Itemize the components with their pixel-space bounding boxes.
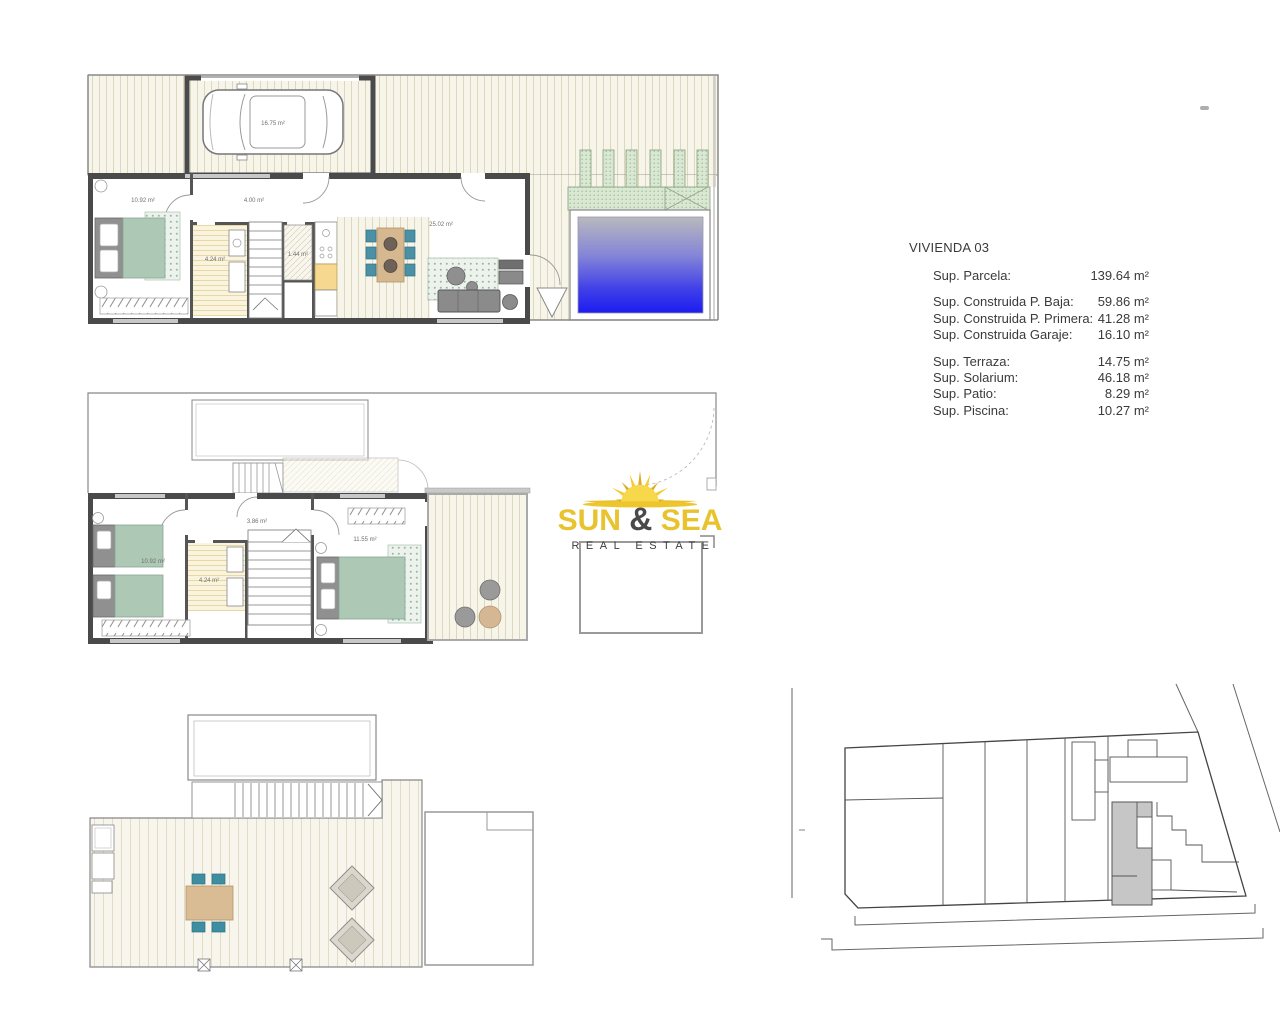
logo-tagline: REAL ESTATE: [550, 540, 730, 552]
area-label: Sup. Terraza:: [933, 354, 1010, 370]
tv-unit: [499, 271, 523, 284]
car: 16.75 m²: [203, 84, 343, 160]
lamp-icon: [95, 180, 107, 192]
area-value: 59.86 m²: [1098, 294, 1149, 310]
stairs-ground: [249, 222, 282, 318]
terrace-table: [479, 606, 501, 628]
stairs-first: [248, 529, 311, 625]
wc-ground: 1.44 m²: [284, 225, 312, 280]
sidewalk-lines: [821, 904, 1263, 950]
bedroom-area-label: 10.92 m²: [141, 559, 165, 565]
page-canvas: 16.75 m²: [0, 0, 1280, 1024]
tv-unit: [499, 260, 523, 269]
coffee-table: [447, 267, 465, 285]
lamp-icon: [316, 625, 327, 636]
lamp-icon: [316, 543, 327, 554]
area-label: Sup. Solarium:: [933, 370, 1018, 386]
terrace-first: [425, 488, 530, 640]
area-label: Sup. Construida P. Baja:: [933, 294, 1074, 310]
double-bed: [123, 218, 165, 278]
logo: SUN & SEA REAL ESTATE: [550, 454, 730, 552]
bedroom-left-first: 10.92 m²: [93, 513, 191, 637]
logo-word-sea: SEA: [661, 504, 723, 537]
area-label: Sup. Parcela:: [933, 268, 1011, 284]
area-row: Sup. Parcela: 139.64 m²: [909, 268, 1149, 284]
dining-table: [377, 228, 404, 282]
bathroom-first: 4.24 m²: [188, 543, 245, 611]
solarium-table: [186, 886, 233, 920]
living-area: 25.02 m²: [428, 222, 523, 312]
area-label: Sup. Piscina:: [933, 403, 1009, 419]
area-row: Sup. Piscina: 10.27 m²: [909, 403, 1149, 419]
bath-area-label: 4.24 m²: [205, 257, 225, 263]
bathroom-ground: 4.24 m²: [193, 225, 247, 316]
kitchen: [315, 222, 337, 316]
kitchen-counter: [315, 264, 337, 290]
vivienda-title: VIVIENDA 03: [909, 240, 1149, 255]
stairs-upper: [233, 458, 428, 493]
wardrobe-hatch: [102, 620, 190, 636]
area-label: Sup. Construida Garaje:: [933, 327, 1072, 343]
area-value: 46.18 m²: [1098, 370, 1149, 386]
hall-area-label: 4.00 m²: [244, 198, 264, 204]
bedroom-area-label: 11.55 m²: [353, 537, 376, 543]
area-row: Sup. Patio: 8.29 m²: [909, 386, 1149, 402]
wc-area-label: 1.44 m²: [288, 252, 308, 258]
lamp-icon: [93, 513, 104, 524]
wardrobe-hatch: [348, 508, 405, 524]
roof-kitchenette: [92, 825, 114, 893]
hall-area-label: 3.86 m²: [247, 519, 267, 525]
roof-outline: [188, 715, 376, 780]
terrace-chair: [480, 580, 500, 600]
area-value: 14.75 m²: [1098, 354, 1149, 370]
area-row: Sup. Construida P. Baja: 59.86 m²: [909, 294, 1149, 310]
single-bed: [115, 575, 163, 617]
living-area-label: 25.02 m²: [429, 222, 453, 228]
garage-area-label: 16.75 m²: [261, 121, 285, 127]
area-row: Sup. Construida P. Primera: 41.28 m²: [909, 311, 1149, 327]
logo-wordmark: SUN & SEA: [550, 504, 730, 536]
armchair: [503, 295, 518, 310]
double-bed: [339, 557, 405, 619]
terrace-chair: [455, 607, 475, 627]
area-row: Sup. Terraza: 14.75 m²: [909, 354, 1149, 370]
solarium-plan: [85, 700, 635, 990]
pool-void-outline: [580, 542, 702, 633]
logo-word-sun: SUN: [558, 504, 621, 537]
area-value: 41.28 m²: [1098, 311, 1149, 327]
sun-icon: [578, 454, 702, 508]
info-panel: VIVIENDA 03 Sup. Parcela: 139.64 m² Sup.…: [909, 240, 1149, 419]
area-value: 10.27 m²: [1098, 403, 1149, 419]
bath-area-label: 4.24 m²: [199, 578, 219, 584]
area-row: Sup. Construida Garaje: 16.10 m²: [909, 327, 1149, 343]
bedroom-ground: 10.92 m²: [95, 180, 188, 314]
area-value: 16.10 m²: [1098, 327, 1149, 343]
area-row: Sup. Solarium: 46.18 m²: [909, 370, 1149, 386]
pool: [570, 210, 710, 320]
ground-floor-plan: 16.75 m²: [85, 70, 720, 332]
site-plan: [785, 680, 1280, 990]
side-platform: [425, 812, 533, 965]
bedroom-area-label: 10.92 m²: [131, 198, 155, 204]
area-value: 8.29 m²: [1105, 386, 1149, 402]
stairs-solarium: [192, 782, 382, 818]
lamp-icon: [95, 286, 107, 298]
sofa: [438, 290, 500, 312]
scan-artifact: [1200, 106, 1209, 110]
logo-ampersand: &: [629, 501, 652, 537]
area-label: Sup. Patio:: [933, 386, 997, 402]
wardrobe-hatch: [100, 298, 188, 314]
area-label: Sup. Construida P. Primera:: [933, 311, 1093, 327]
area-value: 139.64 m²: [1090, 268, 1149, 284]
